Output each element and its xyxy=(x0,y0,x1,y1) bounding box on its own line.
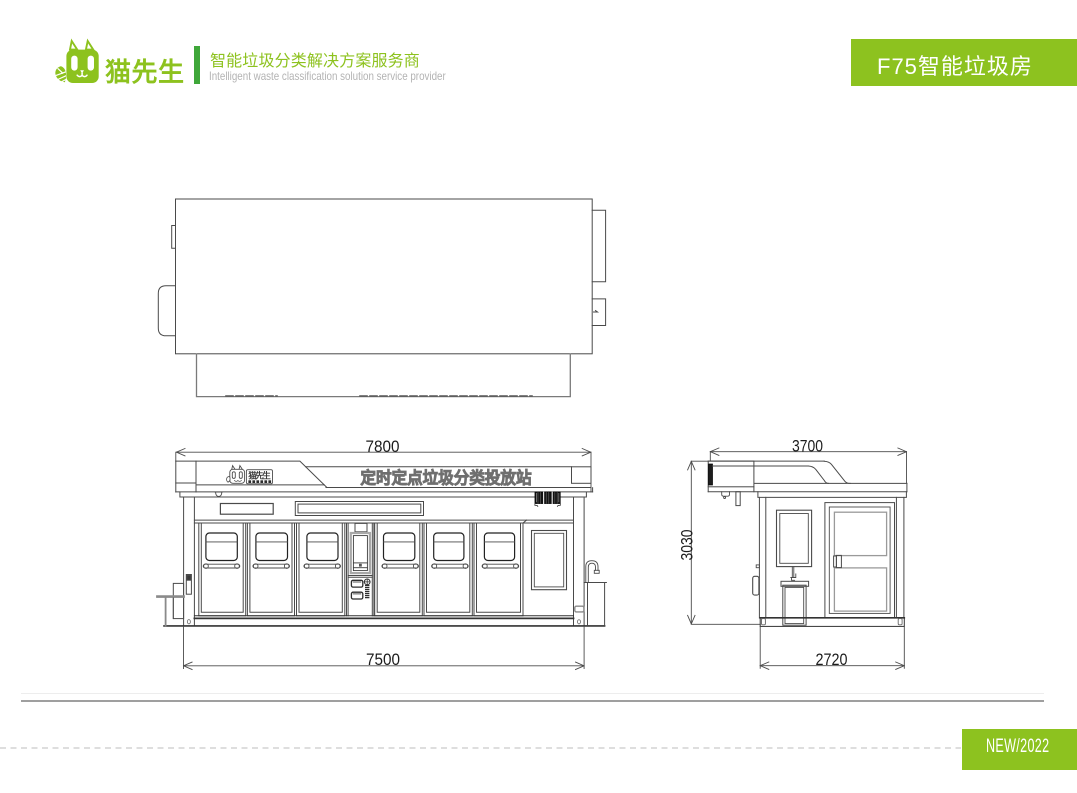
svg-text:猫先生: 猫先生 xyxy=(247,471,271,481)
svg-text:2720: 2720 xyxy=(816,650,848,669)
svg-text:3700: 3700 xyxy=(792,437,823,456)
svg-text:定时定点垃圾分类投放站: 定时定点垃圾分类投放站 xyxy=(361,468,532,488)
svg-text:7500: 7500 xyxy=(366,650,400,669)
svg-text:7800: 7800 xyxy=(366,437,400,456)
svg-text:3030: 3030 xyxy=(678,530,697,561)
